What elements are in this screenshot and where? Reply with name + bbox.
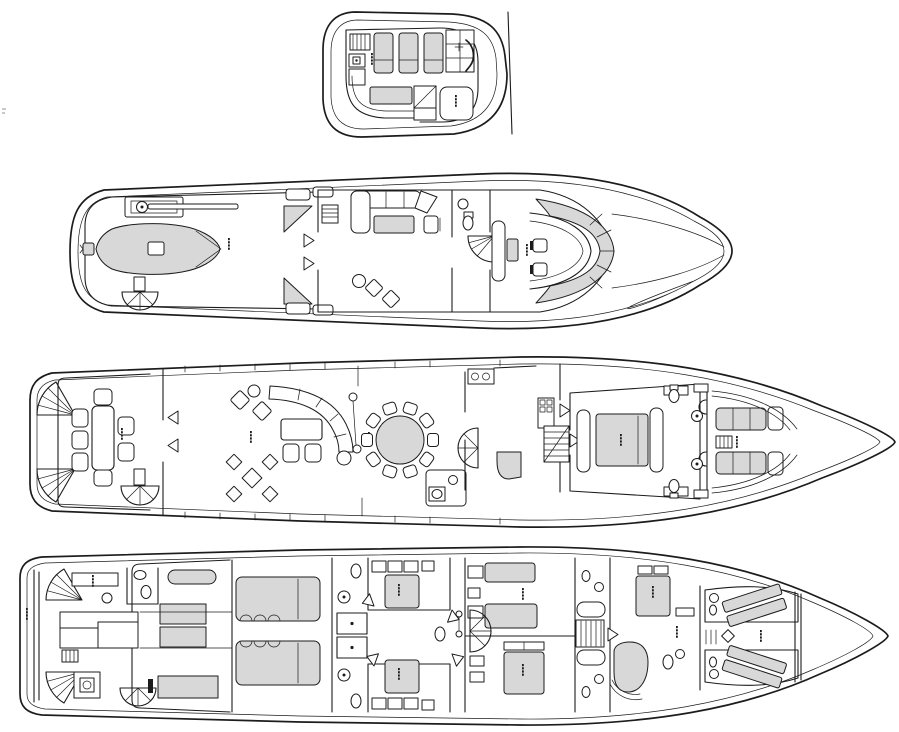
engine-room bbox=[236, 577, 320, 685]
door-swing bbox=[360, 594, 374, 610]
crew-quarters-aft bbox=[60, 568, 248, 706]
door-swing bbox=[304, 257, 314, 270]
door-swing bbox=[560, 404, 570, 417]
lower-deck bbox=[20, 547, 888, 725]
twin-cabin bbox=[468, 563, 537, 628]
micro-label bbox=[526, 244, 528, 256]
round-shower bbox=[610, 642, 648, 700]
jacuzzi bbox=[440, 87, 473, 120]
game-table bbox=[226, 454, 278, 502]
door-swing bbox=[304, 234, 314, 247]
vip-cabin bbox=[610, 566, 694, 700]
bar-corner bbox=[414, 86, 436, 120]
davit-crane bbox=[125, 197, 238, 217]
master-bed bbox=[596, 414, 648, 466]
bar-table bbox=[370, 87, 412, 104]
coffee-table bbox=[374, 216, 414, 233]
sun-deck bbox=[323, 12, 512, 137]
game-chairs bbox=[353, 275, 401, 309]
laundry bbox=[74, 672, 100, 698]
micro-label bbox=[228, 238, 230, 250]
foredeck-settees bbox=[712, 391, 797, 493]
spiral-stairs-aft bbox=[122, 277, 158, 310]
outboard-motor-icon bbox=[80, 243, 94, 255]
fwd-crew bbox=[705, 584, 801, 689]
console-boxes bbox=[349, 54, 365, 85]
day-head bbox=[426, 470, 466, 506]
guest-double-cabin-port bbox=[372, 561, 434, 608]
door-swing bbox=[452, 651, 466, 667]
double-cabin-mid bbox=[470, 642, 544, 694]
micro-label bbox=[371, 53, 373, 65]
spiral-stairs-aft bbox=[120, 679, 156, 706]
mid-bathrooms bbox=[576, 571, 605, 698]
spiral-stairs-aft bbox=[121, 469, 159, 505]
day-head bbox=[458, 199, 473, 230]
main-deck bbox=[30, 357, 895, 527]
deck-plan-drawing bbox=[0, 0, 899, 732]
guest-double-cabin-stbd bbox=[372, 660, 434, 710]
sun-pads bbox=[374, 33, 443, 73]
stern-fan-stairs bbox=[37, 382, 75, 502]
helm-chairs bbox=[530, 239, 547, 276]
door-swing bbox=[608, 628, 618, 641]
bridge-deck bbox=[70, 173, 732, 328]
aft-dining-table bbox=[72, 389, 134, 486]
spiral-stairs-galley bbox=[458, 428, 478, 468]
armchairs bbox=[230, 385, 272, 421]
pilothouse-bench bbox=[492, 221, 518, 281]
companionway-hatch-icon bbox=[350, 34, 370, 50]
coffee-table bbox=[281, 419, 322, 440]
stair-flight bbox=[576, 620, 604, 647]
mast-line bbox=[508, 12, 512, 134]
footstools bbox=[283, 444, 321, 462]
round-dining-table bbox=[362, 401, 439, 478]
foredeck-bulwarks bbox=[612, 214, 724, 288]
swim-platform bbox=[26, 570, 39, 702]
side-deck-stairs bbox=[322, 205, 338, 223]
aft-steps bbox=[62, 650, 78, 662]
portuguese-bridge bbox=[692, 384, 709, 498]
tender bbox=[80, 224, 221, 275]
edge-artifact bbox=[2, 108, 6, 114]
door-swing bbox=[168, 411, 178, 424]
door-swing bbox=[168, 439, 178, 452]
curved-stairs bbox=[468, 236, 494, 262]
stair-flight bbox=[544, 426, 569, 462]
watertight-doors bbox=[337, 613, 367, 658]
galley bbox=[458, 364, 569, 492]
guest-cabin-bathrooms bbox=[338, 564, 361, 708]
master-stateroom bbox=[570, 384, 706, 499]
windshield bbox=[536, 199, 614, 303]
armchair-desk bbox=[424, 216, 440, 233]
yacht-deck-plans bbox=[0, 0, 899, 732]
